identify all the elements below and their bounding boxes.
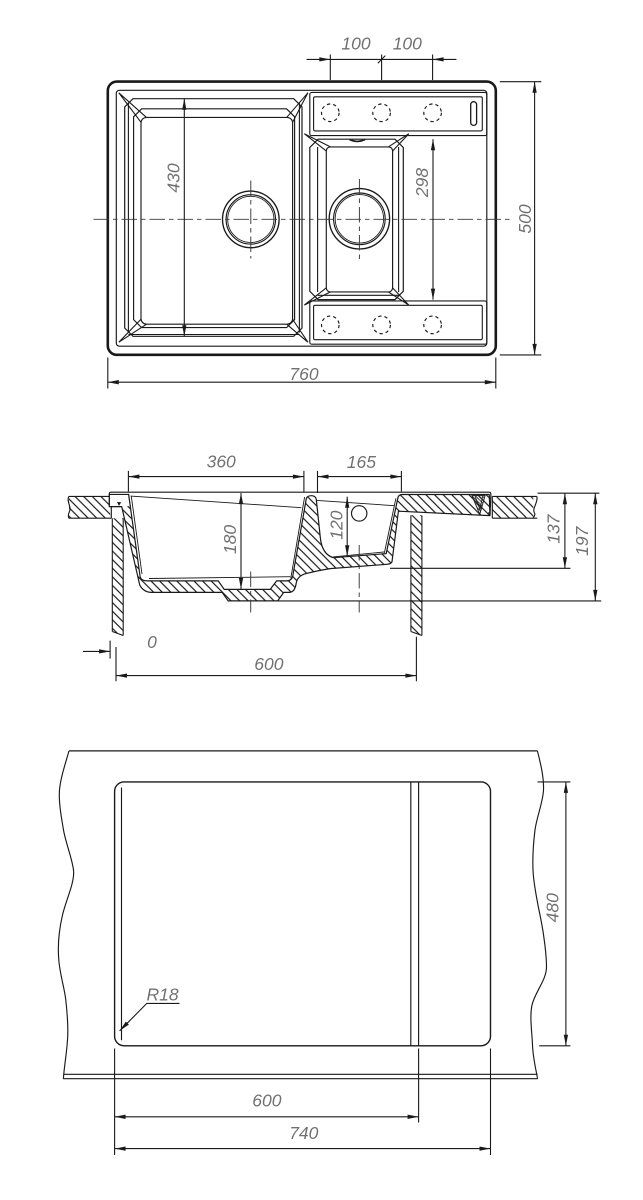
svg-text:197: 197 [572,525,592,555]
svg-text:100: 100 [393,34,422,54]
svg-text:430: 430 [163,163,183,192]
svg-text:360: 360 [207,452,236,472]
svg-text:600: 600 [254,654,283,674]
svg-text:165: 165 [347,452,376,472]
svg-text:298: 298 [412,168,432,198]
svg-text:500: 500 [515,204,535,233]
svg-text:R18: R18 [147,985,179,1005]
svg-text:740: 740 [289,1123,318,1143]
svg-text:100: 100 [341,34,370,54]
svg-text:180: 180 [220,525,240,554]
svg-text:760: 760 [289,364,318,384]
svg-text:0: 0 [147,632,157,652]
svg-text:480: 480 [542,893,562,922]
svg-text:120: 120 [326,510,346,539]
svg-text:137: 137 [543,513,563,543]
svg-text:600: 600 [252,1091,281,1111]
